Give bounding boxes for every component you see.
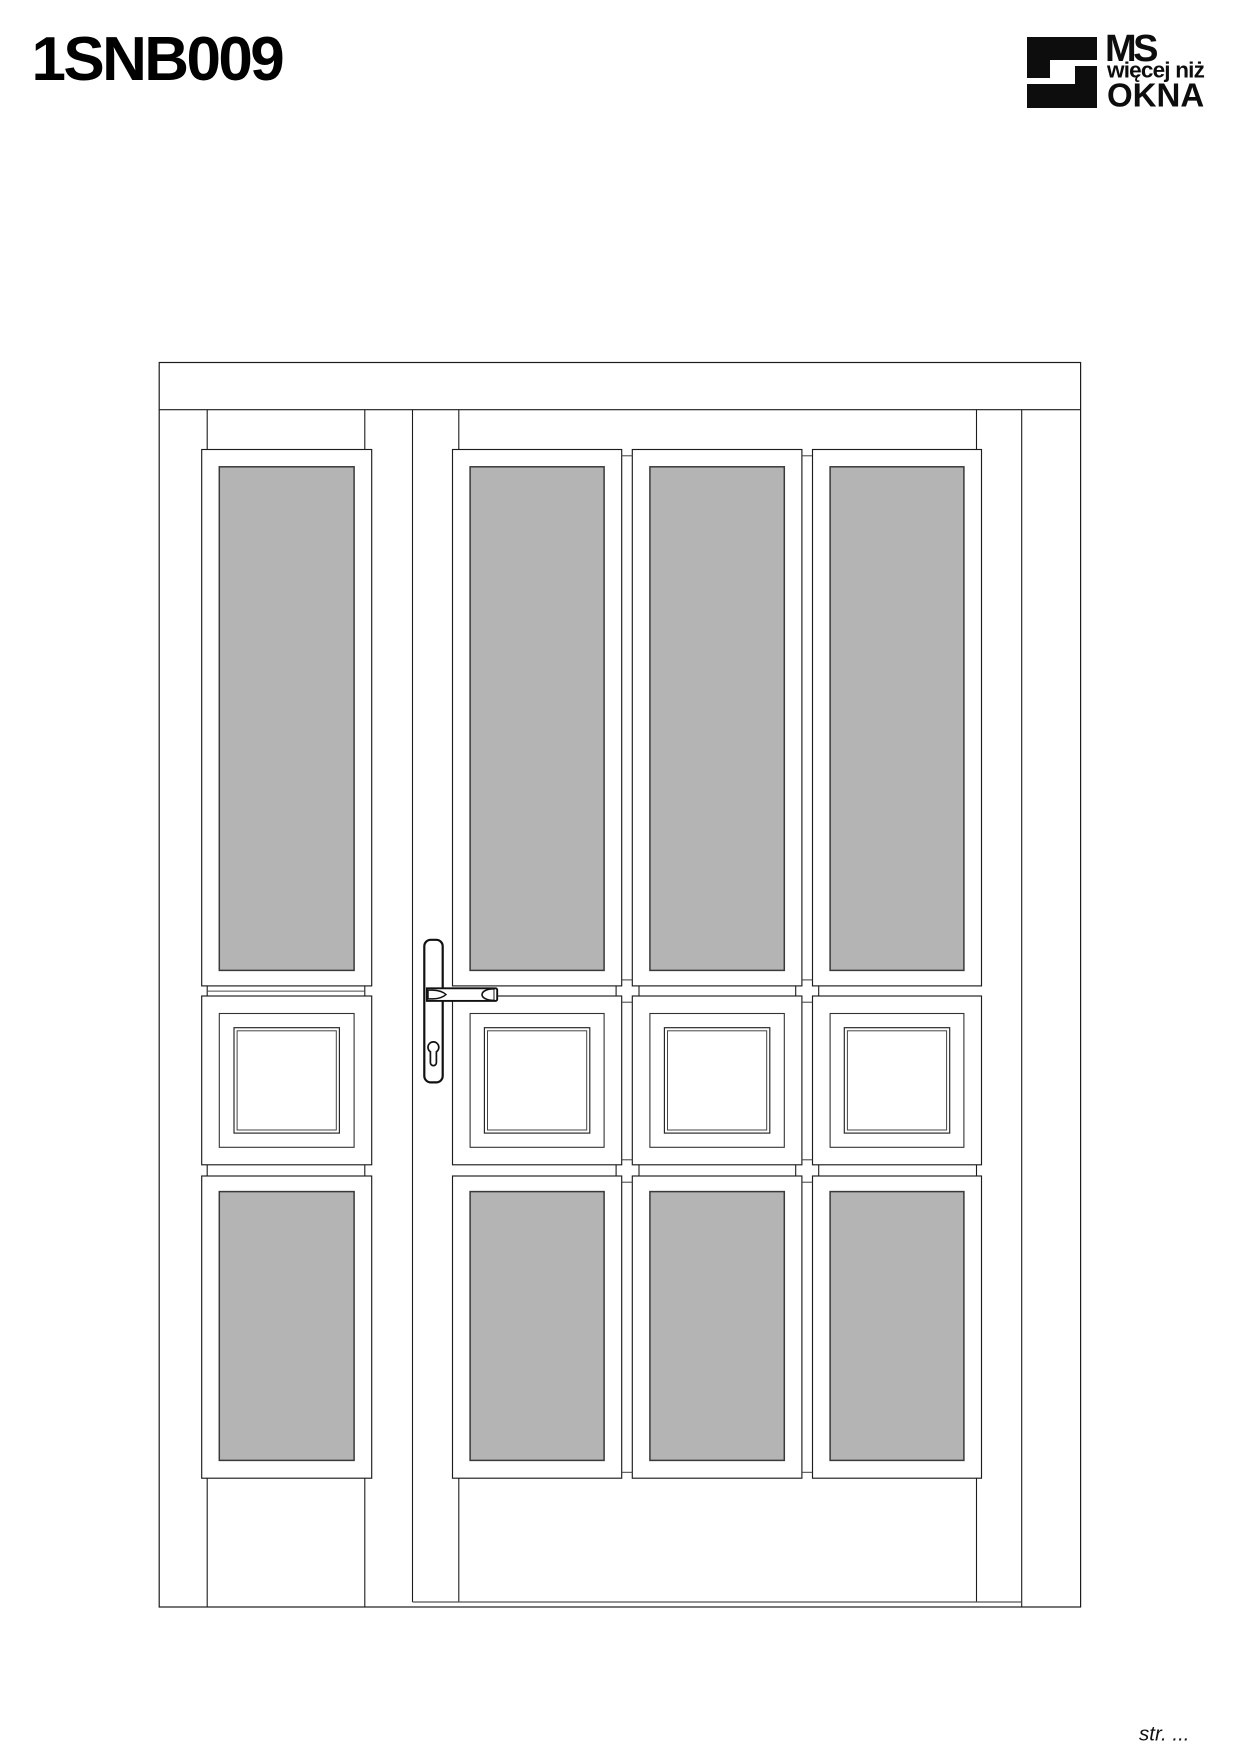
svg-text:str. ...: str. ... (1139, 1723, 1190, 1746)
svg-text:1SNB009: 1SNB009 (32, 25, 284, 94)
svg-text:OKNA: OKNA (1107, 77, 1204, 114)
